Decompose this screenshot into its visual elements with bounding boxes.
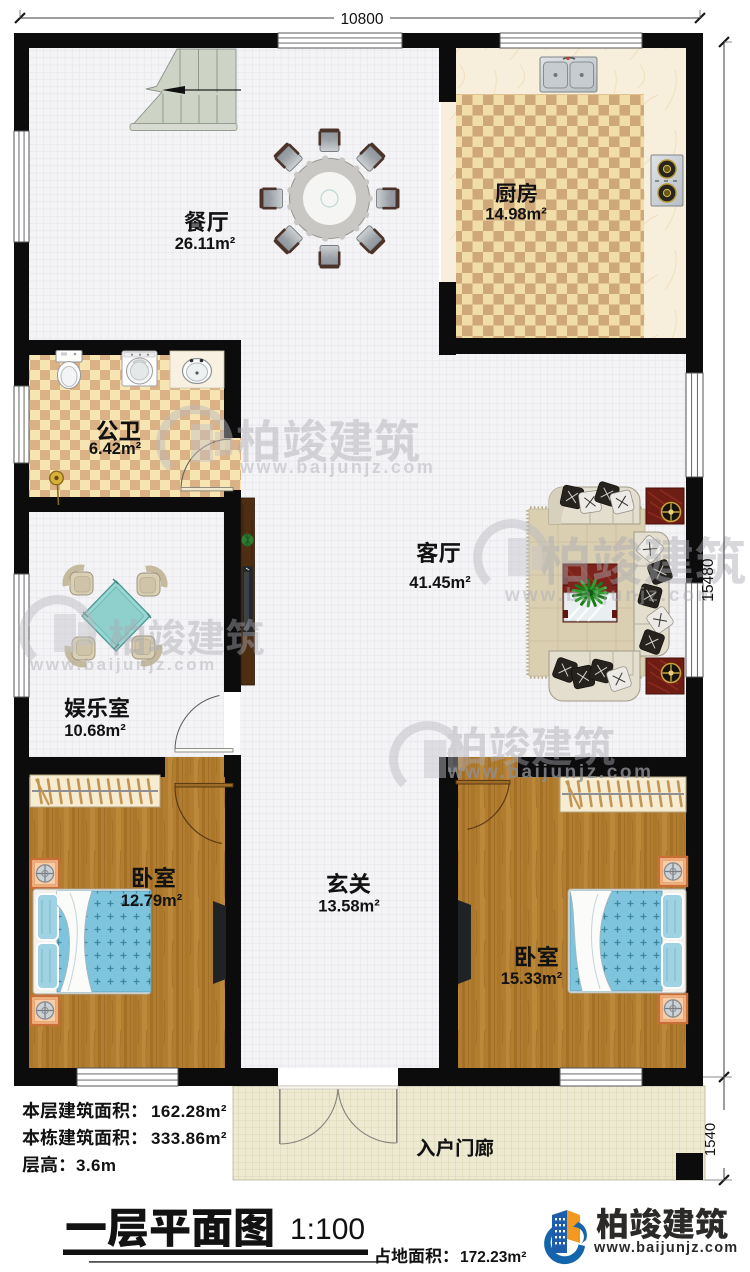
svg-text:172.23m²: 172.23m² [460, 1249, 526, 1266]
svg-text:www.baijunjz.com: www.baijunjz.com [239, 457, 435, 477]
svg-text:6.42m²: 6.42m² [89, 440, 142, 458]
svg-text:41.45m²: 41.45m² [409, 574, 471, 592]
svg-text:333.86m²: 333.86m² [151, 1129, 227, 1148]
svg-text:12.79m²: 12.79m² [121, 892, 183, 910]
svg-text:www.baijunjz.com: www.baijunjz.com [593, 1240, 738, 1256]
svg-text:3.6m: 3.6m [76, 1156, 116, 1175]
svg-text:162.28m²: 162.28m² [151, 1102, 227, 1121]
svg-text:26.11m²: 26.11m² [175, 235, 236, 253]
svg-text:10800: 10800 [340, 11, 383, 28]
svg-text:1:100: 1:100 [290, 1213, 365, 1246]
svg-text:14.98m²: 14.98m² [485, 206, 547, 224]
svg-text:www.baijunjz.com: www.baijunjz.com [447, 762, 654, 783]
svg-text:www.baijunjz.com: www.baijunjz.com [29, 655, 217, 674]
svg-text:1540: 1540 [702, 1123, 719, 1156]
svg-text:13.58m²: 13.58m² [318, 898, 380, 916]
svg-text:www.baijunjz.com: www.baijunjz.com [504, 585, 717, 606]
svg-text:10.68m²: 10.68m² [64, 722, 126, 740]
svg-text:15.33m²: 15.33m² [501, 970, 563, 988]
svg-text:15480: 15480 [700, 558, 717, 601]
